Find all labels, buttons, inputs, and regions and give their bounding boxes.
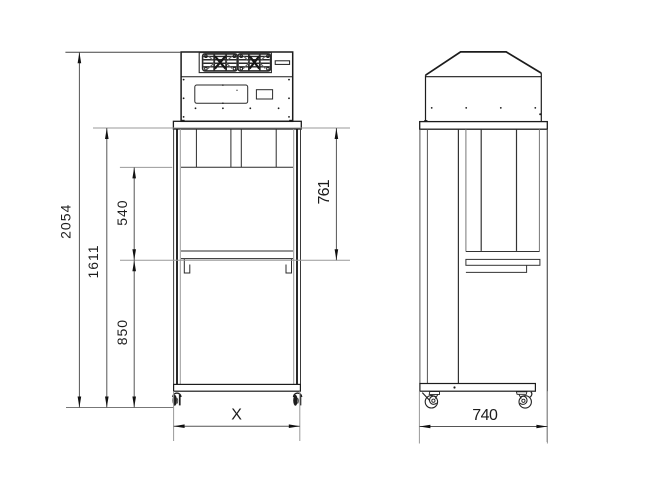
svg-text:2054: 2054 [57, 204, 73, 239]
svg-text:540: 540 [114, 199, 130, 225]
svg-text:740: 740 [472, 407, 498, 424]
svg-text:850: 850 [114, 319, 130, 345]
svg-text:X: X [231, 407, 242, 424]
svg-text:761: 761 [316, 179, 333, 204]
svg-text:1611: 1611 [85, 244, 101, 278]
